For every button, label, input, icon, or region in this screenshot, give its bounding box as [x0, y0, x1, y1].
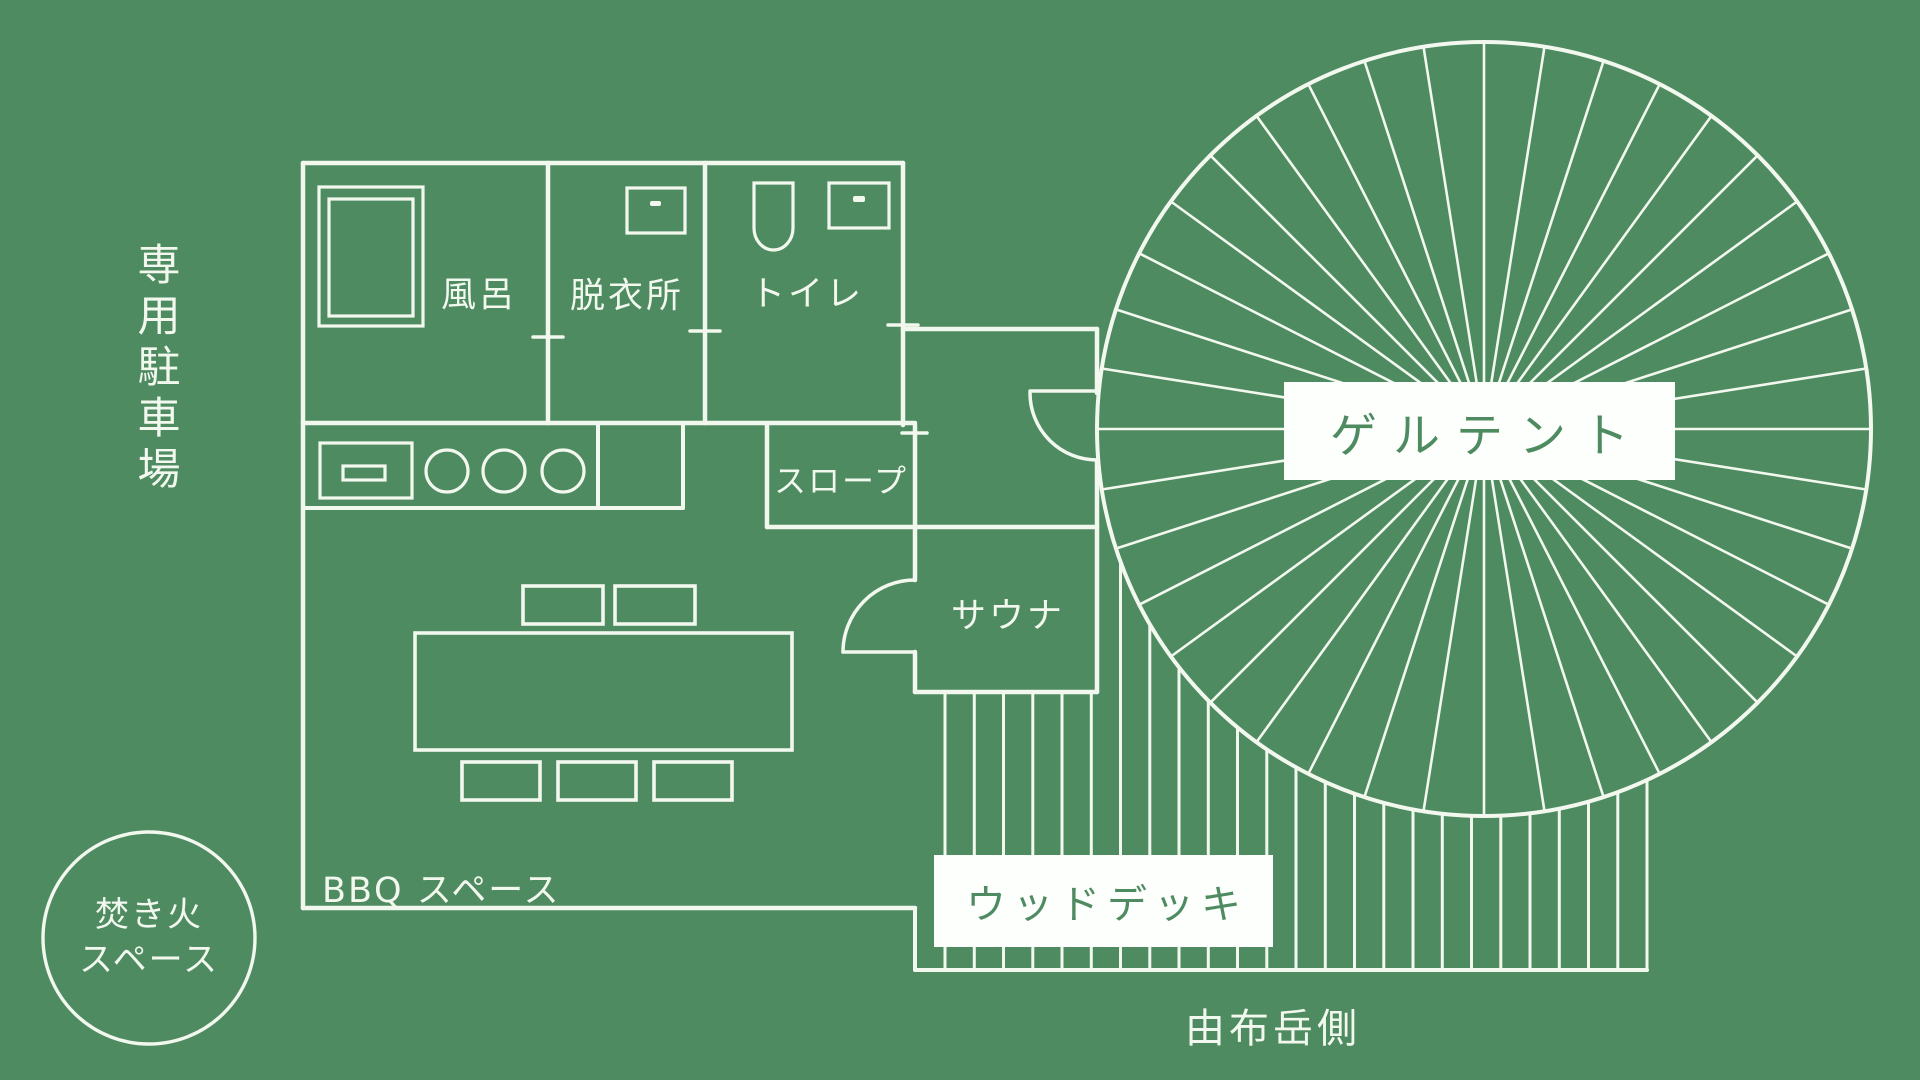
bonfire-space-label-line1: 焚き火 — [79, 893, 219, 938]
toilet-room-label: トイレ — [750, 266, 864, 317]
faucet-dash-icon — [650, 201, 661, 206]
faucet-dash-icon — [853, 196, 865, 202]
bbq-space-label: BBQ スペース — [322, 862, 561, 913]
slope-label: スロープ — [774, 456, 908, 502]
changing-room-label: 脱衣所 — [570, 268, 684, 319]
bonfire-space-label: 焚き火 スペース — [79, 893, 219, 983]
mt-yufu-side-label: 由布岳側 — [1185, 996, 1361, 1054]
parking-label: 専用駐車場 — [124, 242, 186, 497]
ger-tent-label: ゲルテント — [1314, 397, 1645, 466]
wood-deck-label-box: ウッドデッキ — [934, 855, 1273, 947]
wood-deck-label: ウッドデッキ — [959, 872, 1248, 930]
ger-tent-label-box: ゲルテント — [1284, 382, 1675, 480]
bath-room-label: 風呂 — [441, 267, 517, 318]
sauna-room-label: サウナ — [951, 588, 1065, 639]
bonfire-space-label-line2: スペース — [79, 938, 219, 983]
site-map: ゲルテント ウッドデッキ 専用駐車場 風呂 脱衣所 トイレ スロープ サウナ B… — [0, 0, 1920, 1080]
